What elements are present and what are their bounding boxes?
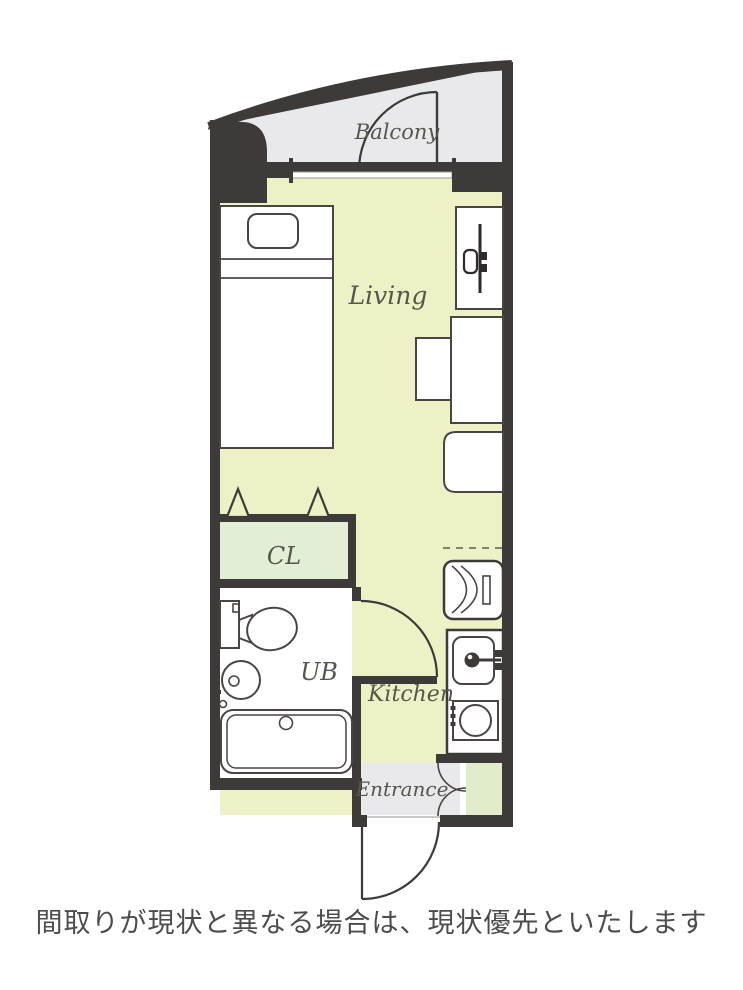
stove-icon	[451, 701, 499, 740]
kitchen-shoe-divider-wall	[436, 754, 508, 763]
caption-text: 間取りが現状と異なる場合は、現状優先といたします	[0, 901, 743, 940]
closet-bottom-wall	[215, 579, 356, 588]
bathtub-icon	[221, 710, 352, 773]
bath-label: UB	[300, 658, 338, 686]
pillow-icon	[248, 214, 298, 248]
window-tick-left	[289, 158, 293, 183]
entrance-bottom-wall-right	[440, 815, 508, 827]
top-left-wall-mass	[208, 120, 267, 203]
bath-right-wall-upper	[352, 587, 361, 601]
balcony-label: Balcony	[354, 120, 441, 144]
refrigerator-icon	[444, 561, 503, 619]
kitchen-counter	[447, 630, 504, 754]
chair-icon	[416, 338, 451, 400]
balcony-bottom-wall-right	[452, 162, 508, 192]
floor-plan: UB Balcony L	[0, 0, 743, 990]
left-wall	[210, 120, 220, 790]
bath-bottom-wall	[210, 778, 362, 790]
entrance-door-arc	[362, 822, 439, 899]
bath-right-wall-lower	[352, 676, 361, 827]
living-label: Living	[348, 281, 428, 310]
stool-icon	[444, 432, 503, 492]
bed-icon	[220, 206, 333, 448]
closet-right-wall	[348, 514, 356, 587]
entrance-bottom-wall-left	[352, 815, 367, 827]
entrance-label: Entrance	[355, 777, 449, 801]
shoe-cabinet-area	[466, 763, 502, 815]
floor-plan-svg: UB Balcony L	[0, 0, 743, 990]
window-tick-right	[452, 158, 456, 183]
balcony-window	[292, 172, 452, 178]
kitchen-label: Kitchen	[367, 682, 454, 707]
tv-board	[456, 207, 503, 309]
closet-label: CL	[267, 542, 301, 570]
desk-icon	[451, 317, 503, 423]
